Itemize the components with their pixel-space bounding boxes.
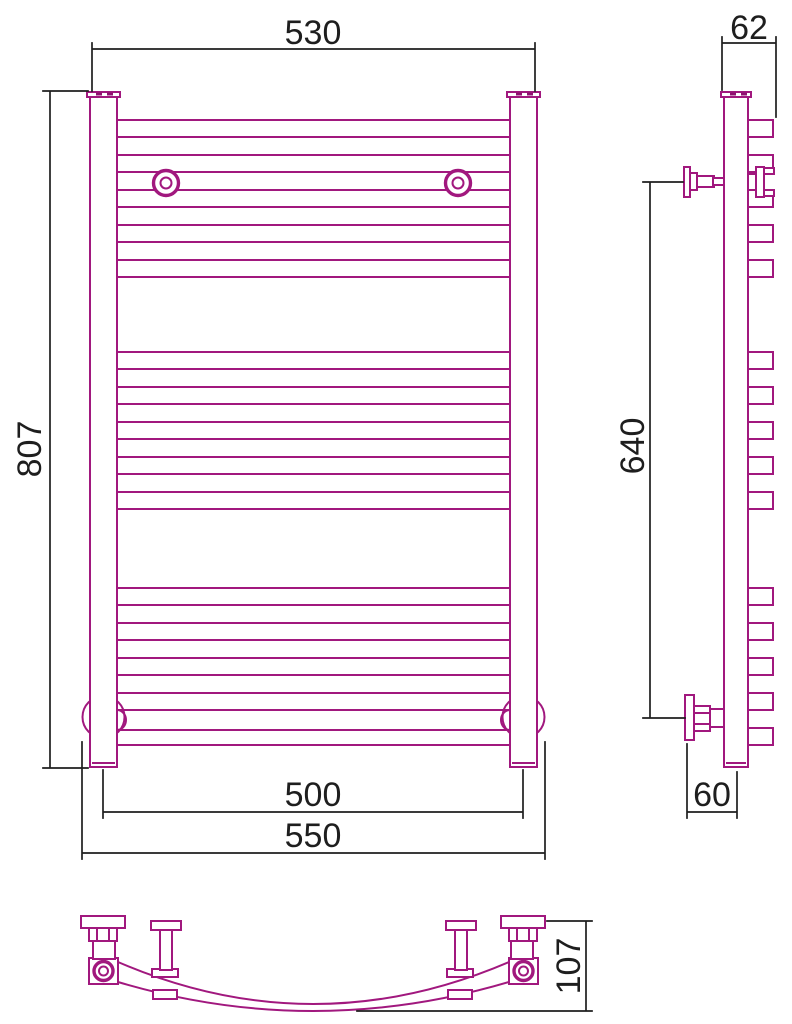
towel-rail-drawing: 530 62 807 640 500 550 60 107: [0, 0, 792, 1024]
bottom-view-left-pin: [151, 921, 181, 999]
bottom-view-right-fitting: [501, 916, 545, 984]
side-collector-tube: [724, 97, 748, 767]
top-left-bracket-hole: [161, 178, 172, 189]
bottom-connector-tube: [117, 710, 510, 730]
left-collector-tube: [90, 97, 117, 767]
side-rungs-top-group: [748, 120, 773, 277]
dim-500-label: 500: [285, 776, 342, 814]
top-right-bracket-hole: [453, 178, 464, 189]
bottom-view-right-pin: [446, 921, 476, 999]
side-rungs-bottom-group: [748, 588, 773, 745]
dim-530-label: 530: [285, 14, 342, 52]
bottom-view: [81, 916, 545, 1011]
right-tube-top-cap: [507, 92, 540, 97]
dim-807-lines: [43, 91, 88, 768]
dim-62-label: 62: [730, 9, 768, 47]
bottom-view-left-fitting: [81, 916, 125, 984]
front-view: [83, 92, 545, 767]
side-view: [684, 92, 774, 767]
side-rungs-middle-group: [748, 352, 773, 509]
dim-60-label: 60: [693, 776, 731, 814]
front-rungs-middle-group: [117, 352, 510, 509]
front-rungs-bottom-group: [117, 588, 510, 745]
front-rungs-top-group: [117, 120, 510, 277]
left-tube-top-cap: [87, 92, 120, 97]
dim-807-label: 807: [11, 421, 49, 478]
dim-550-label: 550: [285, 817, 342, 855]
right-collector-tube: [510, 97, 537, 767]
dim-107-label: 107: [550, 938, 588, 995]
side-top-bracket: [684, 167, 724, 197]
drawing-canvas: 530 62 807 640 500 550 60 107: [0, 0, 792, 1024]
dim-640-label: 640: [614, 418, 652, 475]
side-bottom-bracket: [685, 695, 724, 740]
